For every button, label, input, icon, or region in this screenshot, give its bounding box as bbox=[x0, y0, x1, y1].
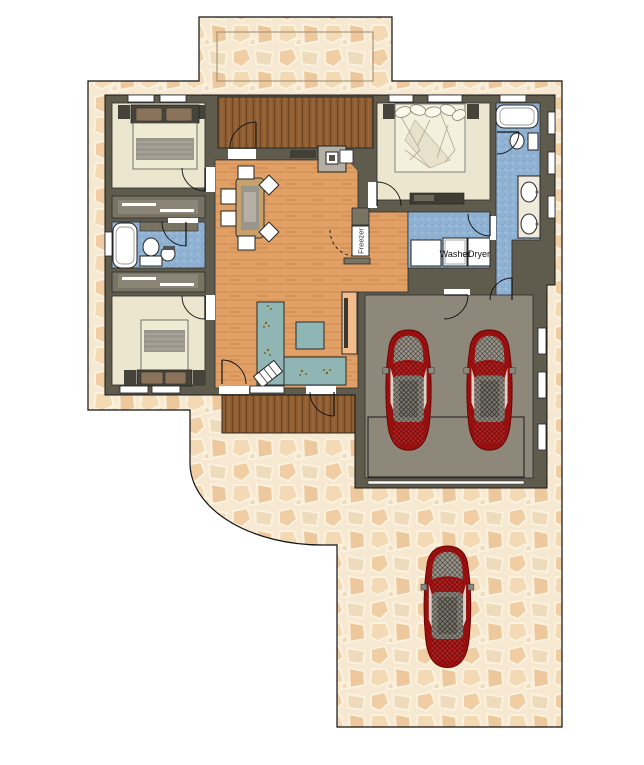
window bbox=[152, 386, 180, 393]
window bbox=[250, 386, 284, 393]
car-garage-right bbox=[464, 330, 515, 450]
window bbox=[120, 386, 148, 393]
car-driveway bbox=[421, 546, 474, 668]
sink bbox=[521, 214, 537, 234]
sink bbox=[521, 182, 537, 202]
kitchen-counter bbox=[284, 357, 346, 385]
floor-plan-page: Freezer bbox=[0, 0, 644, 765]
chair bbox=[238, 236, 255, 250]
chair bbox=[238, 166, 254, 179]
window bbox=[548, 112, 555, 134]
closet-1 bbox=[112, 196, 205, 218]
dryer-label: Dryer bbox=[468, 249, 490, 259]
toilet bbox=[143, 238, 159, 256]
freezer-label: Freezer bbox=[357, 228, 366, 254]
laundry-appliances: Washer Dryer bbox=[411, 238, 490, 266]
window bbox=[548, 152, 555, 174]
garage-door bbox=[368, 481, 524, 484]
washer-label: Washer bbox=[440, 249, 471, 259]
window bbox=[160, 95, 186, 102]
kitchen-island bbox=[296, 322, 324, 349]
laundry-sink bbox=[411, 240, 441, 266]
window bbox=[428, 95, 462, 102]
window bbox=[538, 328, 546, 354]
window bbox=[538, 424, 546, 450]
floor-plan-canvas: Freezer bbox=[0, 0, 644, 765]
master-bed bbox=[383, 103, 479, 172]
window bbox=[105, 232, 112, 256]
front-deck bbox=[218, 97, 373, 148]
closet-2 bbox=[112, 272, 205, 292]
rear-deck bbox=[222, 392, 375, 433]
window bbox=[389, 95, 413, 102]
chair bbox=[221, 211, 236, 226]
car-garage-left bbox=[383, 330, 434, 450]
chair bbox=[221, 189, 236, 204]
window bbox=[128, 95, 154, 102]
window bbox=[548, 196, 555, 218]
window bbox=[538, 372, 546, 398]
window bbox=[500, 95, 526, 102]
master-dresser bbox=[410, 193, 464, 204]
